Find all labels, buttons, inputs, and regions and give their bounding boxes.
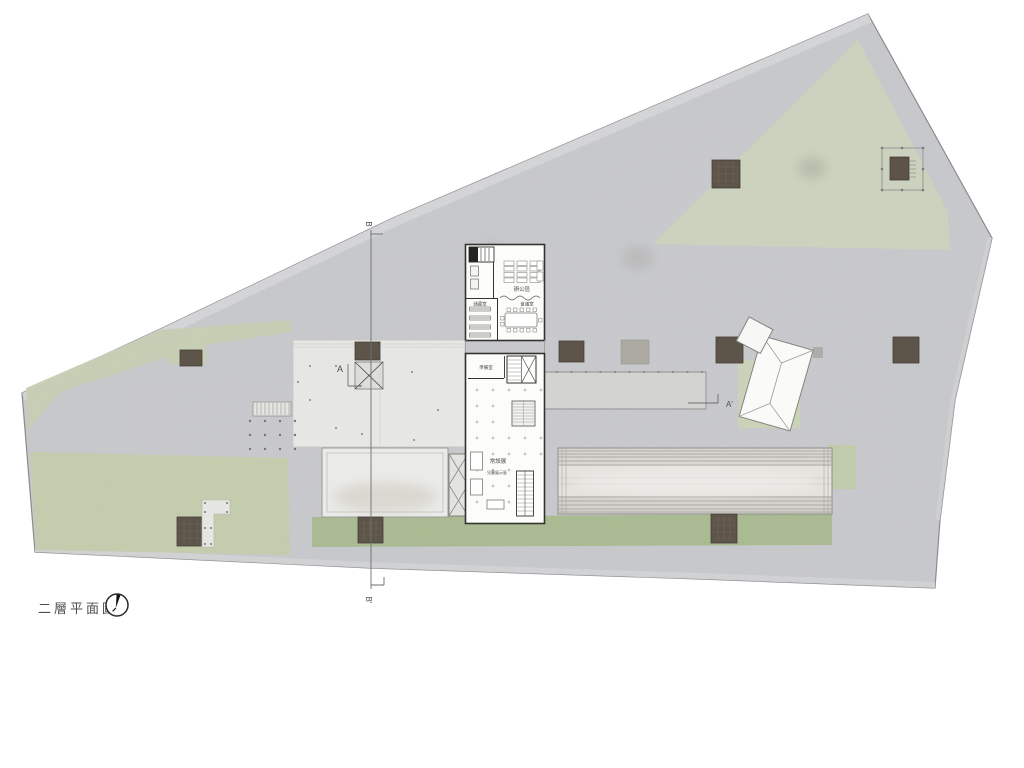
section-marker-b-bottom: B' — [364, 597, 373, 604]
room-label-archive: 儲藏室 — [473, 301, 487, 308]
site-plan-canvas: 辦公區 儲藏室 會議室 準備室 常設展 兒童展示區 — [0, 0, 1024, 768]
planter-west — [180, 350, 202, 366]
north-arrow-icon — [106, 594, 128, 616]
planter-topgreen-1 — [712, 160, 740, 188]
section-marker-a-left: A — [337, 364, 343, 374]
room-label-prep: 準備室 — [479, 364, 493, 371]
south-long-stair — [517, 471, 534, 516]
planter-bottom-1 — [358, 517, 383, 543]
planter-mid-1 — [559, 341, 584, 362]
floor-plan-page: 辦公區 儲藏室 會議室 準備室 常設展 兒童展示區 — [0, 0, 1024, 768]
building-exhibition-block: 準備室 常設展 兒童展示區 — [466, 340, 545, 524]
planter-mid-2 — [621, 340, 649, 364]
planter-plaza-north — [355, 342, 383, 389]
planter-small-gray — [813, 347, 823, 358]
room-label-children-exhibition: 兒童展示區 — [487, 469, 507, 475]
elevator-shaft — [507, 356, 536, 383]
section-marker-a-right: A' — [726, 400, 733, 409]
title-block: 二層平面圖 — [38, 594, 128, 616]
room-label-office: 辦公區 — [514, 285, 531, 293]
central-core-stair — [512, 401, 535, 426]
meeting-table — [501, 308, 543, 332]
building-upper-block: 辦公區 儲藏室 會議室 — [465, 245, 545, 341]
planter-bottom-2 — [711, 514, 737, 543]
planter-east — [893, 337, 919, 363]
section-marker-b-top: B — [364, 221, 373, 226]
upper-stair — [469, 247, 494, 262]
room-label-meeting: 會議室 — [520, 301, 534, 308]
room-label-permanent-exhibition: 常設展 — [490, 457, 507, 465]
